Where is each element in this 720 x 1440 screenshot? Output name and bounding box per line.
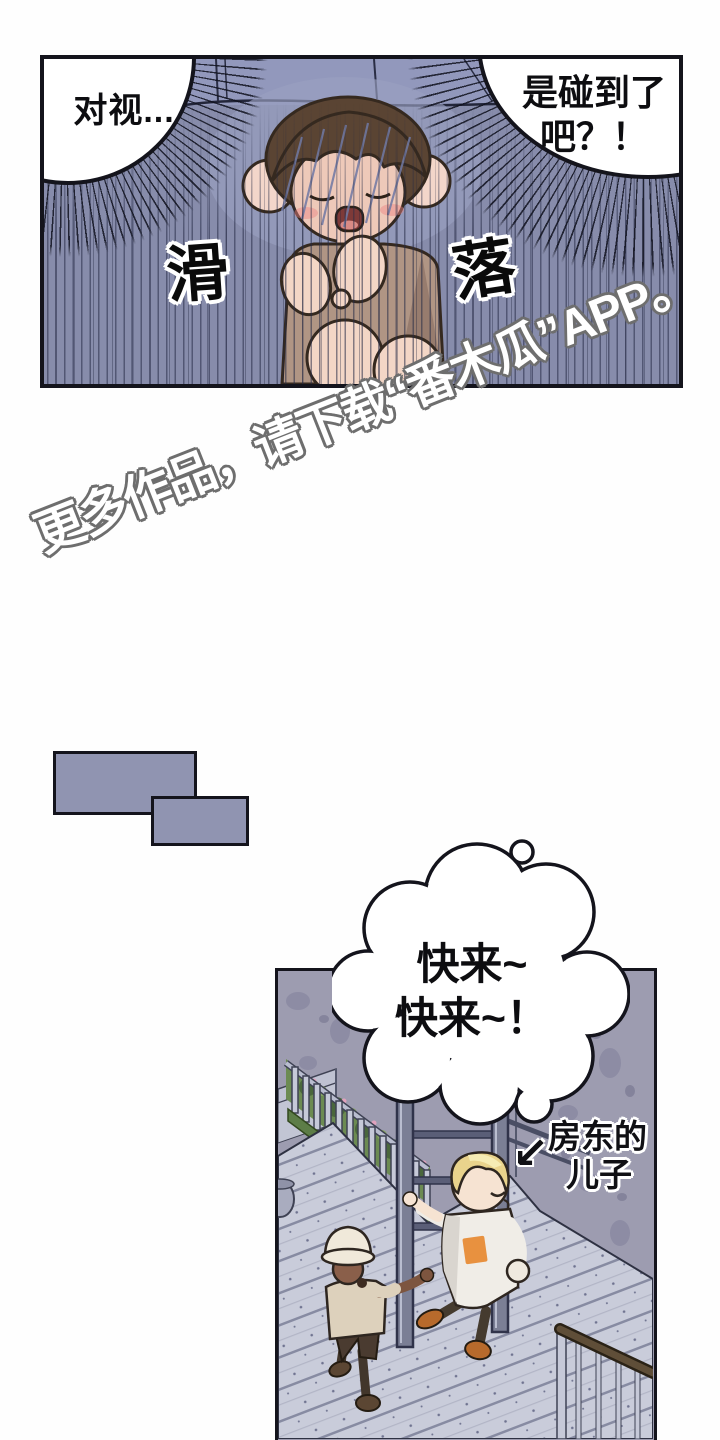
sfx-slide-char1: 滑	[163, 221, 231, 315]
decor-rectangle-2	[151, 796, 249, 846]
speech-text-kuailai-line2: 快来~！	[352, 992, 592, 1046]
speech-text-pengdao: 是碰到了 吧？！	[499, 71, 683, 159]
speech-text-kuailai: 快来~ 快来~！	[352, 938, 592, 1046]
speech-text-pengdao-line2: 吧？！	[499, 115, 683, 159]
speech-text-kuailai-line1: 快来~	[352, 938, 592, 992]
arrow-down-left-icon: ↙	[512, 1128, 549, 1179]
speech-text-pengdao-line1: 是碰到了	[499, 71, 683, 115]
landlord-son-label-line2: 儿子	[566, 1148, 632, 1196]
speech-text-duishi: 对视...	[44, 83, 204, 132]
comic-page: 对视... 是碰到了 吧？！ 滑 落 更多作品，请下载“番木瓜”APP。	[0, 0, 720, 1440]
